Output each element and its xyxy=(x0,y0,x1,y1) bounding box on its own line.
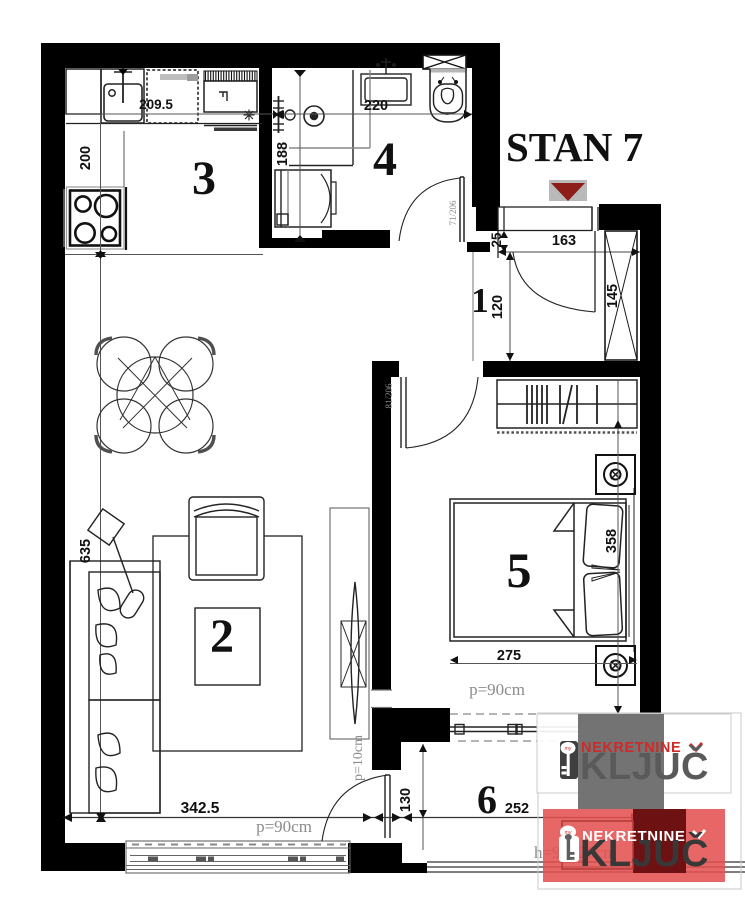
svg-text:220: 220 xyxy=(364,98,388,114)
svg-text:145: 145 xyxy=(605,284,621,308)
svg-text:358: 358 xyxy=(604,529,620,553)
svg-text:71/206: 71/206 xyxy=(448,200,458,226)
svg-text:2: 2 xyxy=(210,610,234,663)
svg-text:25: 25 xyxy=(489,232,504,248)
svg-text:81/206: 81/206 xyxy=(384,383,394,409)
svg-text:KLJUČ: KLJUČ xyxy=(580,743,708,788)
svg-text:130: 130 xyxy=(398,788,414,812)
svg-text:4: 4 xyxy=(373,133,397,186)
svg-text:5: 5 xyxy=(507,542,532,598)
svg-text:p=90cm: p=90cm xyxy=(256,817,312,836)
svg-text:p=90cm: p=90cm xyxy=(469,680,525,699)
svg-text:209.5: 209.5 xyxy=(139,97,173,112)
svg-text:p=10cm: p=10cm xyxy=(351,735,366,781)
svg-text:342.5: 342.5 xyxy=(181,800,220,817)
svg-text:275: 275 xyxy=(497,648,521,664)
svg-text:188: 188 xyxy=(275,142,291,166)
svg-text:1: 1 xyxy=(471,281,489,320)
svg-text:120: 120 xyxy=(490,295,506,319)
svg-text:KLJUČ: KLJUČ xyxy=(580,830,708,875)
svg-text:635: 635 xyxy=(78,539,94,563)
svg-text:200: 200 xyxy=(78,146,94,170)
svg-text:STAN 7: STAN 7 xyxy=(506,124,643,170)
svg-text:my: my xyxy=(565,746,572,752)
svg-text:163: 163 xyxy=(552,233,576,249)
svg-text:252: 252 xyxy=(505,801,529,817)
svg-text:6: 6 xyxy=(477,777,497,822)
svg-text:3: 3 xyxy=(192,152,216,205)
